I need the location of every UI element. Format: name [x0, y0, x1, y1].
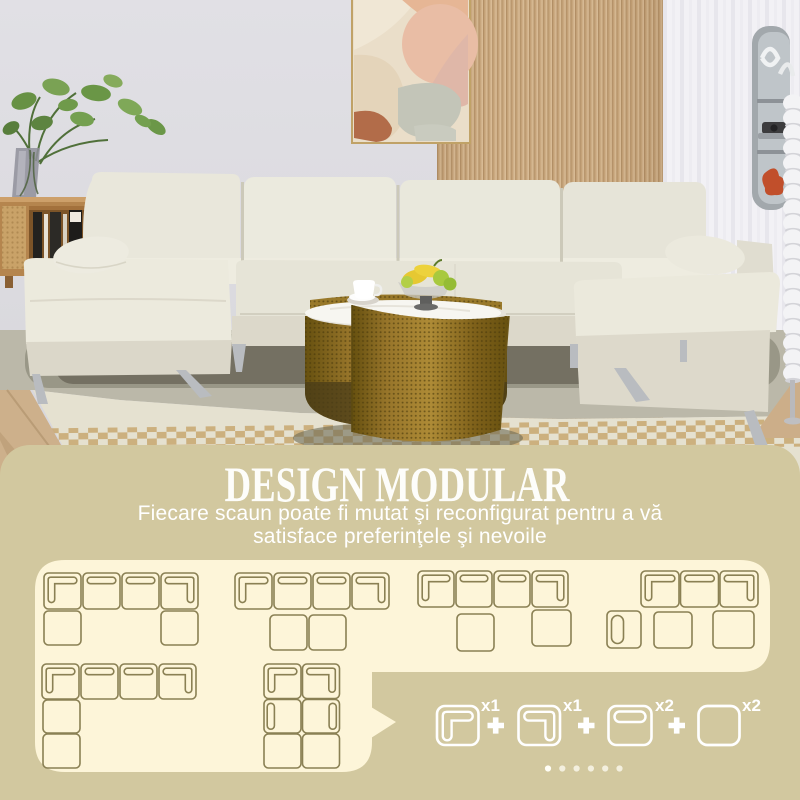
svg-text:x1: x1 [481, 696, 500, 715]
svg-text:x1: x1 [563, 696, 582, 715]
svg-text:x2: x2 [655, 696, 674, 715]
svg-text:x2: x2 [742, 696, 761, 715]
